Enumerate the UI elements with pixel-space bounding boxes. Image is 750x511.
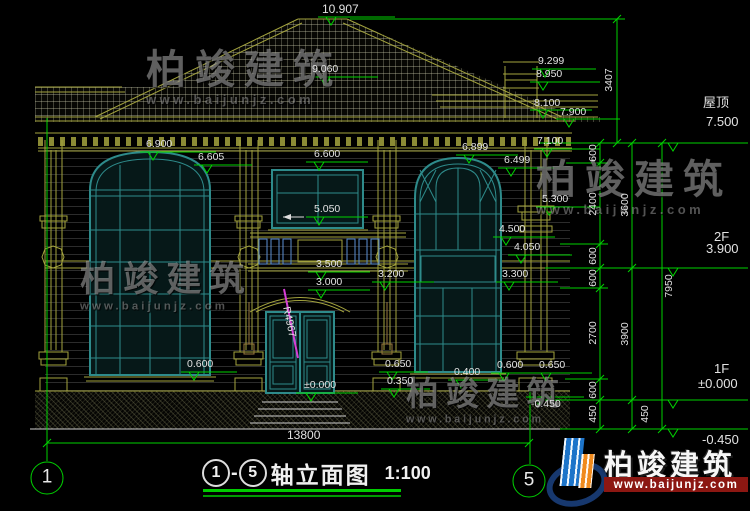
title-axis-start: 1 [202, 459, 230, 487]
floor2-elev: 3.900 [706, 242, 739, 255]
drawing-title: 1 - 5 轴立面图 1:100 [202, 456, 431, 490]
title-name: 轴立面图 [271, 456, 371, 490]
elev-right-capital: 5.300 [542, 194, 568, 205]
dim-inner-2: 600 [588, 247, 599, 265]
elev-balcony-rail: 3.500 [316, 259, 342, 270]
elev-base-right-c: 0.650 [539, 360, 565, 371]
logo-url-text: www.baijunjz.com [614, 479, 739, 491]
dim-total-height: 7950 [664, 274, 675, 297]
roof-elev: 7.500 [706, 115, 739, 128]
floor1-elev: ±0.000 [698, 377, 738, 390]
elev-base-right-a: 0.400 [454, 367, 480, 378]
elev-ridge: 10.907 [322, 3, 359, 15]
dim-inner-0: 600 [588, 144, 599, 162]
dim-mid-2: 450 [640, 405, 651, 423]
elev-chimney-band: 8.950 [536, 69, 562, 80]
dim-inner-5: 600 [588, 381, 599, 399]
elev-center-window-sill: 5.050 [314, 204, 340, 215]
elev-base-right-b: 0.600 [497, 360, 523, 371]
floor1-label: 1F [714, 362, 729, 375]
elev-right-window-arch: 6.499 [504, 155, 530, 166]
elev-right-band: 3.300 [502, 269, 528, 280]
elev-right-cornice: 6.899 [462, 142, 488, 153]
title-underline-thin [203, 495, 401, 497]
dim-mid-0: 3600 [620, 193, 631, 216]
axis-bubble-5: 5 [524, 470, 535, 492]
elev-center-window-top: 6.600 [314, 149, 340, 160]
elev-left-cornice: 6.900 [146, 139, 172, 150]
watermark: 柏竣建筑www.baijunjz.com [146, 50, 342, 106]
dim-total-width: 13800 [287, 429, 320, 441]
elev-sub-ridge: 9.060 [312, 64, 338, 75]
elev-chimney-top: 9.299 [538, 56, 564, 67]
elev-base-left: 0.600 [187, 359, 213, 370]
site-logo: 柏竣建筑 www.baijunjz.com [546, 434, 750, 508]
roof-label: 屋顶 [703, 96, 729, 109]
elev-door-sill: ±0.000 [304, 380, 336, 391]
title-dash: - [231, 462, 238, 485]
cad-elevation-drawing: 柏竣建筑www.baijunjz.com 柏竣建筑www.baijunjz.co… [0, 0, 750, 511]
title-scale: 1:100 [385, 463, 431, 484]
watermark: 柏竣建筑www.baijunjz.com [536, 160, 732, 216]
dim-inner-6: 450 [588, 405, 599, 423]
elev-right-sill: 4.050 [514, 242, 540, 253]
title-underline-thick [203, 489, 401, 492]
dim-mid-1: 3900 [620, 322, 631, 345]
elev-porch-step-top: 0.650 [385, 359, 411, 370]
elev-main-eave: 7.100 [537, 136, 563, 147]
elev-porch-roof: 3.200 [378, 269, 404, 280]
elev-wing-ridge: 8.100 [534, 98, 560, 109]
elev-right-window-mid: 4.500 [499, 224, 525, 235]
elev-porch-step-mid: 0.350 [387, 376, 413, 387]
dim-inner-3: 600 [588, 269, 599, 287]
watermark: 柏竣建筑www.baijunjz.com [80, 262, 252, 311]
title-axis-end: 5 [239, 459, 267, 487]
axis-bubble-1: 1 [42, 467, 53, 489]
elev-door-arch: 3.000 [316, 277, 342, 288]
elev-ground-line: -0.450 [531, 399, 561, 410]
dim-inner-4: 2700 [588, 321, 599, 344]
dim-roof-height: 3407 [604, 68, 615, 91]
elev-left-window-arch: 6.605 [198, 152, 224, 163]
logo-url-band: www.baijunjz.com [604, 477, 748, 492]
dim-inner-1: 2400 [588, 192, 599, 215]
elev-wing-eave: 7.900 [560, 107, 586, 118]
